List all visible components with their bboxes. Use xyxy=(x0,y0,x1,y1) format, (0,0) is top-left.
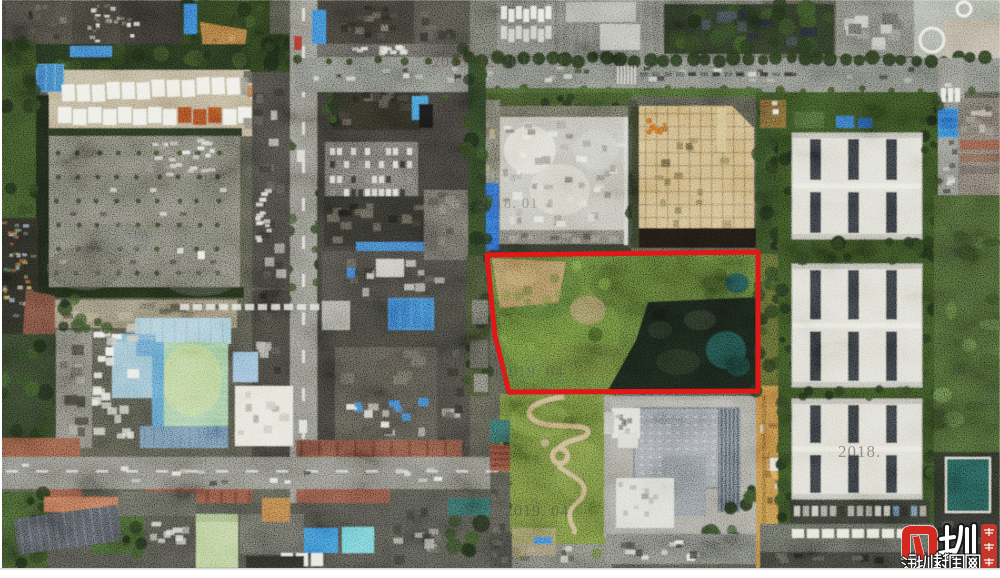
svg-text:2018. 11: 2018. 11 xyxy=(424,507,480,522)
svg-text:2018.: 2018. xyxy=(838,442,881,461)
svg-text:2018. 12: 2018. 12 xyxy=(432,54,496,71)
svg-text:2019. 01: 2019. 01 xyxy=(502,53,566,70)
svg-text:2019. 04: 2019. 04 xyxy=(505,503,569,520)
svg-text:18. 12 2018. 01: 18. 12 2018. 01 xyxy=(430,196,539,212)
svg-text:2019. 04: 2019. 04 xyxy=(500,364,564,381)
